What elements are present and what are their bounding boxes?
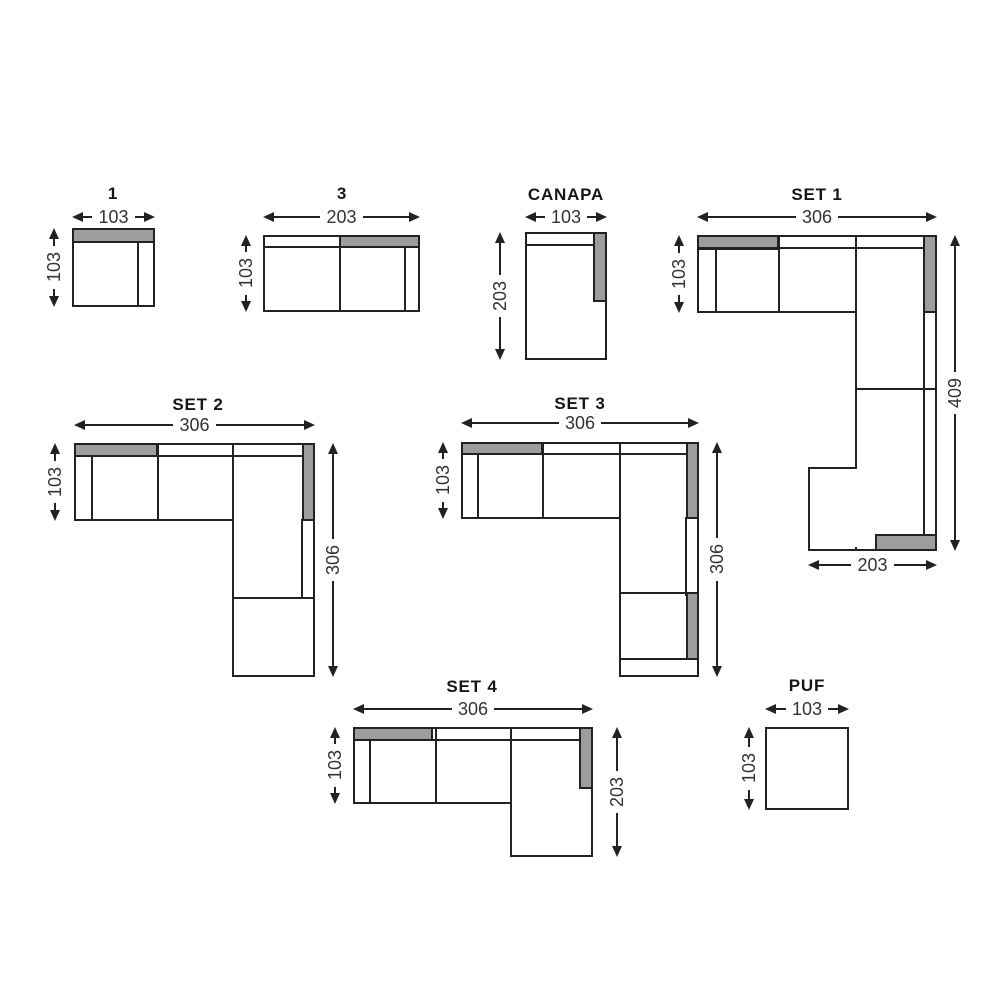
dim-line — [54, 503, 56, 510]
arrow-left-icon — [525, 212, 536, 222]
arrow-down-icon — [612, 846, 622, 857]
armrest-line — [404, 248, 406, 312]
arrow-up-icon — [49, 228, 59, 239]
dim-bottom-width: 203 — [808, 557, 937, 573]
arrow-left-icon — [808, 560, 819, 570]
dim-line — [828, 708, 838, 710]
dim-right-height: 306 — [325, 443, 341, 677]
arrow-left-icon — [697, 212, 708, 222]
sofa-outline — [765, 727, 849, 810]
arrow-down-icon — [438, 508, 448, 519]
dim-value: 306 — [452, 700, 494, 718]
dim-line — [678, 295, 680, 302]
backrest-fill — [593, 232, 607, 302]
dim-width: 306 — [697, 209, 937, 225]
dim-line — [601, 422, 688, 424]
dim-line — [776, 708, 786, 710]
dim-value: 306 — [559, 414, 601, 432]
seat-divider-line — [339, 235, 341, 312]
backrest-fill-corner — [302, 443, 315, 521]
dim-line — [954, 414, 956, 540]
dim-value: 203 — [491, 275, 509, 317]
arrow-up-icon — [674, 235, 684, 246]
armrest-line — [715, 249, 717, 313]
arrow-up-icon — [50, 443, 60, 454]
backrest-line — [74, 455, 302, 457]
arrow-down-icon — [241, 301, 251, 312]
dim-line — [819, 564, 851, 566]
corner-top-line — [808, 467, 857, 469]
arrow-down-icon — [712, 666, 722, 677]
dim-value: 103 — [786, 700, 828, 718]
arrow-right-icon — [688, 418, 699, 428]
arrow-up-icon — [612, 727, 622, 738]
dim-right-height: 203 — [609, 727, 625, 857]
arrow-right-icon — [596, 212, 607, 222]
dim-line — [85, 424, 173, 426]
dim-line — [54, 454, 56, 461]
dim-line — [587, 216, 596, 218]
dim-line — [536, 216, 545, 218]
seat-divider-line — [778, 235, 780, 313]
module-label: SET 2 — [172, 396, 223, 413]
arrow-left-icon — [461, 418, 472, 428]
arrow-right-icon — [838, 704, 849, 714]
dim-value: 103 — [45, 246, 63, 288]
dim-line — [894, 564, 926, 566]
dim-line — [332, 454, 334, 539]
dim-value: 103 — [670, 253, 688, 295]
dim-line — [616, 738, 618, 771]
dim-line — [716, 581, 718, 666]
arrow-right-icon — [144, 212, 155, 222]
dim-value: 103 — [46, 461, 64, 503]
arrow-down-icon — [950, 540, 960, 551]
dim-depth: 103 — [435, 442, 451, 519]
arm-backrest-line — [685, 517, 687, 596]
arm-divider-line — [232, 597, 315, 599]
arrow-down-icon — [495, 349, 505, 360]
seat-divider-line — [435, 727, 437, 804]
dim-depth: 103 — [741, 727, 757, 810]
arrow-down-icon — [49, 296, 59, 307]
dim-line — [716, 453, 718, 538]
dim-depth: 203 — [492, 232, 508, 360]
dim-depth: 103 — [671, 235, 687, 313]
dim-right-height: 409 — [947, 235, 963, 551]
armrest-line — [137, 243, 139, 307]
module-label: SET 3 — [554, 395, 605, 412]
dim-value: 103 — [326, 744, 344, 786]
arrow-left-icon — [74, 420, 85, 430]
module-label: 3 — [337, 185, 347, 202]
arrow-down-icon — [328, 666, 338, 677]
dim-value: 203 — [608, 771, 626, 813]
arrow-up-icon — [328, 443, 338, 454]
arrow-up-icon — [950, 235, 960, 246]
arm-backrest-line — [923, 311, 925, 535]
arrow-up-icon — [495, 232, 505, 243]
dim-line — [363, 216, 409, 218]
arrow-down-icon — [744, 799, 754, 810]
arrow-right-icon — [926, 560, 937, 570]
backrest-line — [461, 453, 688, 455]
dim-value: 409 — [946, 372, 964, 414]
armrest-line — [369, 741, 371, 804]
module-label: PUF — [789, 677, 825, 694]
backrest-line — [353, 739, 579, 741]
dim-value: 306 — [324, 539, 342, 581]
dim-value: 306 — [796, 208, 838, 226]
arrow-left-icon — [353, 704, 364, 714]
arrow-left-icon — [765, 704, 776, 714]
dim-depth: 103 — [46, 228, 62, 307]
dim-line — [838, 216, 926, 218]
corner-left-line — [808, 467, 810, 551]
module-label: CANAPA — [528, 186, 604, 203]
dim-line — [708, 216, 796, 218]
dim-value: 103 — [237, 252, 255, 294]
arrow-up-icon — [241, 235, 251, 246]
dim-width: 306 — [461, 415, 699, 431]
dim-width: 306 — [353, 701, 593, 717]
dim-depth: 103 — [238, 235, 254, 312]
arrow-left-icon — [72, 212, 83, 222]
dim-value: 203 — [320, 208, 362, 226]
dim-value: 306 — [708, 538, 726, 580]
seat-divider-line — [157, 443, 159, 521]
backrest-line — [525, 244, 594, 246]
dim-line — [494, 708, 582, 710]
dim-line — [748, 790, 750, 799]
arrow-up-icon — [438, 442, 448, 453]
backrest-line — [697, 247, 923, 249]
dim-right-height: 306 — [709, 442, 725, 677]
dim-width: 103 — [72, 209, 155, 225]
dim-line — [364, 708, 452, 710]
module-label: SET 4 — [446, 678, 497, 695]
arrow-down-icon — [674, 302, 684, 313]
dim-line — [954, 246, 956, 372]
arrow-down-icon — [330, 793, 340, 804]
dim-value: 306 — [173, 416, 215, 434]
backrest-fill-chaise — [579, 727, 593, 789]
dim-line — [53, 289, 55, 296]
arrow-up-icon — [712, 442, 722, 453]
dim-line — [83, 216, 92, 218]
arrow-right-icon — [409, 212, 420, 222]
dim-line — [678, 246, 680, 253]
dim-line — [616, 813, 618, 846]
dim-width: 103 — [765, 701, 849, 717]
armrest-line — [477, 455, 479, 519]
backrest-line — [263, 246, 420, 248]
dim-value: 103 — [434, 459, 452, 501]
arrow-right-icon — [304, 420, 315, 430]
dim-depth: 103 — [47, 443, 63, 521]
dim-line — [472, 422, 559, 424]
sofa-dimension-diagram: 1 103 103 3 203 103 CANAPA 103 203 — [0, 0, 997, 997]
arrow-up-icon — [330, 727, 340, 738]
dim-value: 103 — [92, 208, 134, 226]
backrest-fill — [72, 228, 155, 243]
dim-value: 203 — [851, 556, 893, 574]
module-label: SET 1 — [791, 186, 842, 203]
dim-line — [499, 317, 501, 349]
dim-line — [274, 216, 320, 218]
dim-line — [216, 424, 304, 426]
arrow-down-icon — [50, 510, 60, 521]
module-label: 1 — [108, 185, 118, 202]
backrest-fill-bottom — [875, 534, 937, 551]
dim-width: 306 — [74, 417, 315, 433]
dim-line — [499, 243, 501, 275]
dim-width: 203 — [263, 209, 420, 225]
dim-depth: 103 — [327, 727, 343, 804]
arrow-left-icon — [263, 212, 274, 222]
corner-bottom-line — [808, 549, 857, 551]
arrow-right-icon — [926, 212, 937, 222]
seat-divider-line — [542, 442, 544, 519]
arrow-right-icon — [582, 704, 593, 714]
armrest-line — [91, 457, 93, 521]
dim-line — [135, 216, 144, 218]
arm-backrest-line — [301, 519, 303, 599]
dim-value: 103 — [545, 208, 587, 226]
backrest-fill-corner — [923, 235, 937, 313]
arrow-up-icon — [744, 727, 754, 738]
backrest-fill-arm — [686, 592, 699, 660]
dim-value: 103 — [740, 747, 758, 789]
dim-width: 103 — [525, 209, 607, 225]
dim-line — [332, 581, 334, 666]
arm-armrest-line — [619, 658, 699, 660]
